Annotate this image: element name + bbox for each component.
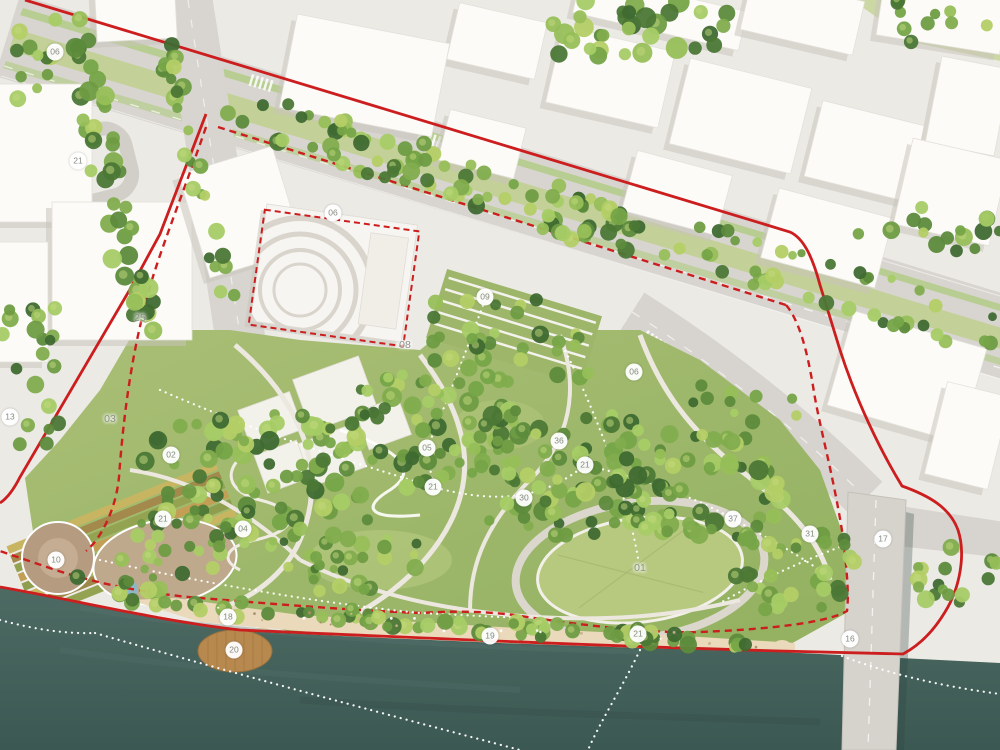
tree [435,470,449,484]
tree [415,422,431,438]
tree-highlight [849,557,856,564]
tree [66,38,86,58]
tree [152,530,165,543]
tree [791,543,802,554]
tree [437,614,453,630]
tree-highlight [606,419,614,427]
tree [610,629,624,643]
tree [569,339,581,351]
tree-highlight [633,624,640,631]
tree [316,453,331,468]
tree [918,227,928,237]
tree-highlight [768,270,775,277]
tree [797,249,805,257]
tree [660,638,662,640]
tree [379,402,391,414]
tree [236,115,250,129]
tree [352,487,369,504]
tree [981,19,993,31]
tree [938,562,952,576]
tree [576,482,596,502]
tree [140,565,149,574]
tree [739,638,752,651]
tree [183,125,193,135]
tree [369,625,372,628]
tree [149,573,157,581]
tree [390,617,393,620]
tree [332,578,348,594]
tree-highlight [605,204,612,211]
tree-highlight [566,35,574,43]
tree [573,10,586,23]
tree-highlight [215,415,223,423]
tree [11,363,23,375]
tree [40,437,54,451]
tree [431,408,443,420]
tree [557,428,571,442]
tree [510,405,521,416]
tree [764,569,778,583]
tree [652,631,654,633]
tree [572,446,589,463]
tree [275,502,288,515]
tree-highlight [518,425,525,432]
tree [673,243,685,255]
tree-highlight [44,401,51,408]
tree [694,222,706,234]
tree [721,224,734,237]
tree [422,396,434,408]
tree [525,189,539,203]
tree [489,465,500,476]
tree [119,201,132,214]
tree [716,19,730,33]
tree [308,611,311,614]
tree [619,48,631,60]
tree [296,459,308,471]
tree [706,37,722,53]
tree-highlight [899,24,906,31]
tree [453,377,465,389]
tree-highlight [639,496,645,502]
tree [841,301,856,316]
tree-highlight [696,507,704,515]
tree [275,133,289,147]
tree-highlight [145,552,151,558]
tree-highlight [621,503,628,510]
tree [552,345,563,356]
tree [107,197,120,210]
tree-highlight [765,589,773,597]
tree [214,285,227,298]
tree [941,231,954,244]
tree [220,105,236,121]
tree-highlight [410,153,417,160]
tree-highlight [318,502,326,510]
tree [558,528,573,543]
tree-highlight [153,519,160,526]
tree-highlight [551,530,558,537]
tree-highlight [342,464,349,471]
tree [931,328,944,341]
tree [335,442,351,458]
tree-highlight [50,304,57,311]
tree-highlight [49,362,56,369]
tree [730,409,738,417]
tree [696,429,708,441]
tree-highlight [244,507,250,513]
tree-highlight [268,481,275,488]
tree [413,617,416,620]
tree [353,135,369,151]
tree [330,624,332,626]
tree [510,306,524,320]
tree [655,449,666,460]
tree [524,203,537,216]
tree-highlight [633,516,640,523]
tree [530,293,543,306]
tree [171,85,184,98]
tree [280,537,289,546]
tree [32,50,43,61]
tree-highlight [119,270,128,279]
tree [227,416,245,434]
tree [216,442,233,459]
tree [803,292,815,304]
tree [106,137,120,151]
tree [597,29,610,42]
tree [175,566,190,581]
tree [468,381,484,397]
tree [253,612,256,615]
tree-highlight [139,455,148,464]
tree [4,304,15,315]
tree-highlight [376,447,383,454]
tree [200,190,211,201]
tree [320,621,322,623]
tree [239,538,249,548]
tree [610,208,627,225]
tree [540,461,556,477]
tree-highlight [641,634,648,641]
tree [413,476,425,488]
tree [383,372,393,382]
tree-highlight [627,635,634,642]
tree [428,384,441,397]
tree [745,414,760,429]
tree [398,479,415,496]
tree [428,295,443,310]
tree-highlight [188,184,195,191]
tree [475,627,488,640]
tree [772,549,783,560]
tree [338,565,349,576]
tree [519,630,522,633]
tree [357,618,360,621]
tree-highlight [73,572,80,579]
tree [942,588,955,601]
tree [449,444,461,456]
tree [397,370,408,381]
tree [149,431,167,449]
tree [749,460,769,480]
tree [130,528,145,543]
tree [724,433,741,450]
tree [600,224,617,241]
tree-highlight [334,615,341,622]
tree [688,41,701,54]
tree [239,436,249,446]
tree [788,251,797,260]
tree [853,228,864,239]
tree-highlight [594,479,601,486]
tree [540,495,552,507]
tree [639,633,641,635]
tree [549,367,565,383]
tree [509,179,519,189]
tree-highlight [906,37,912,43]
tree [755,646,758,649]
tree [970,243,981,254]
tree [228,289,240,301]
tree [888,275,896,283]
bridge [842,492,914,750]
tree-highlight [465,418,472,425]
tree [825,259,836,270]
tree [154,558,163,567]
tree [580,632,583,635]
tree [819,295,835,311]
tree [361,385,373,397]
tree [45,335,56,346]
tree-highlight [186,516,194,524]
tree [302,617,305,620]
tree [359,584,370,595]
tree [482,192,492,202]
tree-highlight [665,489,672,496]
tree [715,265,729,279]
tree [330,565,338,573]
tree-highlight [432,421,440,429]
tree-highlight [117,555,124,562]
tree [190,505,200,515]
tree [545,189,560,204]
tree [468,443,481,456]
tree [307,479,320,492]
tree [501,375,514,388]
tree [166,59,182,75]
tree [96,86,115,105]
tree [577,224,592,239]
tree-highlight [626,417,633,424]
tree [269,415,284,430]
tree-highlight [196,161,203,168]
tree-highlight [219,604,226,611]
tree [748,279,760,291]
tree [83,59,98,74]
tree [85,164,98,177]
tree [166,74,176,84]
masterplan-svg [0,0,1000,750]
tree [508,618,519,629]
tree-highlight [298,411,305,418]
tree [350,613,352,615]
tree [632,424,644,436]
tree [282,98,294,110]
tree [918,320,930,332]
tree [272,514,288,530]
tree [752,237,762,247]
tree [13,437,27,451]
tree [622,22,636,36]
tree-highlight [446,353,454,361]
tree [194,546,205,557]
tree-highlight [772,478,779,485]
tree [467,333,478,344]
tree [586,516,598,528]
tree-highlight [351,431,360,440]
tree [492,436,503,447]
tree [172,103,182,113]
tree [484,515,494,525]
tree [427,311,440,324]
tree [213,540,225,552]
tree [454,615,465,626]
tree [42,69,53,80]
tree [893,316,905,328]
tree [140,582,158,600]
tree-highlight [913,574,921,582]
tree [979,335,990,346]
tree [173,419,188,434]
tree [435,448,446,459]
tree [818,536,832,550]
tree-highlight [886,225,894,233]
tree [169,459,180,470]
tree [434,332,445,343]
tree [979,211,995,227]
tree [307,142,318,153]
tree-highlight [203,453,211,461]
tree-highlight [446,189,453,196]
tree-highlight [345,553,352,560]
tree [537,223,549,235]
building [95,0,177,42]
tree [418,153,432,167]
tree [629,220,640,231]
tree [638,439,650,451]
tree-highlight [88,135,96,143]
tree [695,379,707,391]
tree [982,572,995,585]
tree-highlight [137,272,144,279]
tree [345,416,360,431]
tree-highlight [180,150,187,157]
tree-highlight [463,396,472,405]
tree [550,45,567,62]
tree [688,397,698,407]
tree [334,114,347,127]
tree [103,249,122,268]
tree [372,156,383,167]
tree [929,299,943,313]
tree [599,496,614,511]
tree [325,423,335,433]
tree [261,619,263,621]
tree [542,209,556,223]
tree [955,225,966,236]
tree [235,595,249,609]
tree [530,428,541,439]
tree [718,5,735,22]
tree-highlight [338,159,345,166]
tree [217,607,219,609]
tree-highlight [676,485,683,492]
tree [395,624,398,627]
tree [193,603,208,618]
tree [310,551,322,563]
tree [701,392,714,405]
tree [702,249,713,260]
tree [615,438,627,450]
tree [316,611,328,623]
tree [325,527,342,544]
tree [917,590,935,608]
tree-highlight [310,421,319,430]
tree [346,128,356,138]
tree [666,37,688,59]
tree [443,630,446,633]
tree-highlight [572,198,579,205]
tree [404,396,422,414]
tree [280,470,294,484]
tree [944,5,956,17]
tree-highlight [731,571,739,579]
tree [467,468,477,478]
tree [660,425,678,443]
tree [360,409,370,419]
masterplan-canvas: 0621060908251303022104101820052136213001… [0,0,1000,750]
tree-highlight [535,329,543,337]
tree [325,437,336,448]
tree [215,248,231,264]
tree-highlight [636,47,645,56]
tree [184,541,195,552]
tree [126,294,143,311]
tree [988,312,997,321]
tree [193,469,207,483]
tree [257,99,269,111]
tree-highlight [148,325,156,333]
tree [420,618,435,633]
tree [261,607,275,621]
tree [137,519,146,528]
tree-highlight [419,139,426,146]
tree [48,13,62,27]
tree-highlight [483,371,490,378]
tree [490,299,501,310]
tree [405,451,419,465]
tree [552,474,562,484]
tree [182,484,197,499]
tree-highlight [668,461,675,468]
tree [622,5,636,19]
tree-highlight [819,568,827,576]
tree [439,160,451,172]
tree [380,134,396,150]
tree [741,530,758,547]
tree-highlight [548,19,555,26]
